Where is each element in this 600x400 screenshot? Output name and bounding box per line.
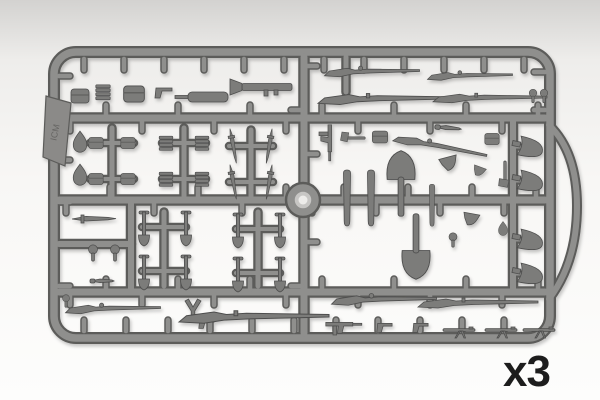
sprue-photo: ICM	[0, 0, 600, 400]
pouch-part	[124, 86, 145, 102]
pouch-part	[121, 173, 135, 184]
clipstack-part	[96, 85, 110, 100]
longrifle-part	[318, 94, 450, 105]
scabbard-part	[344, 170, 351, 226]
holster-part	[462, 212, 480, 226]
rifle-part	[66, 303, 161, 314]
pistol-part	[377, 323, 392, 332]
photo-background: ICM x3	[0, 0, 600, 400]
canister-part	[175, 92, 228, 102]
pouch-part	[71, 89, 89, 103]
pouch-part	[89, 173, 103, 184]
bayonet-part	[72, 215, 116, 223]
shovel-part	[387, 151, 415, 217]
grenade-part	[111, 245, 120, 261]
knife-part	[435, 125, 462, 132]
injection-gate-hub-center	[299, 196, 308, 205]
quantity-label: x3	[503, 350, 550, 394]
smg-part	[319, 125, 332, 161]
pouch-part	[89, 137, 103, 148]
bazooka-part	[230, 79, 292, 96]
sprue	[43, 52, 577, 338]
grenade-part	[89, 245, 98, 261]
rifle-part	[428, 71, 513, 81]
pistol-part	[155, 88, 172, 98]
holster-part	[471, 165, 486, 178]
scabbard-part	[429, 184, 434, 226]
pouch-part	[485, 133, 499, 144]
grenade-part	[449, 233, 457, 247]
knife-part	[90, 279, 114, 283]
grenade-part	[529, 89, 537, 103]
teardrop-part	[499, 221, 508, 235]
shovel-part	[402, 214, 430, 280]
pouch-part	[121, 137, 135, 148]
axe-part	[341, 132, 366, 142]
holster-part	[439, 155, 460, 172]
scabbard-part	[368, 170, 375, 226]
axe-part	[499, 161, 509, 187]
pouch-part	[372, 131, 387, 143]
teardrop-part	[73, 164, 87, 185]
teardrop-part	[73, 131, 87, 152]
